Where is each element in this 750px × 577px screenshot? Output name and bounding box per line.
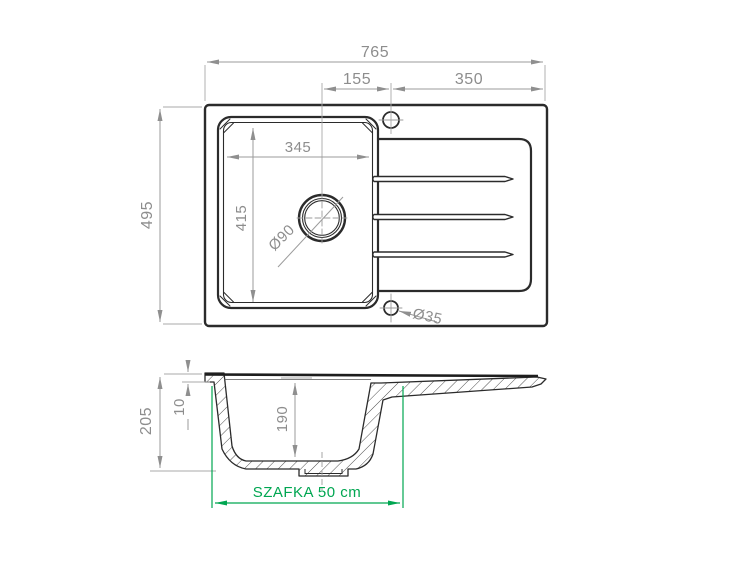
dim-text-bowl-width: 345 [285, 139, 312, 156]
dim-text-overall-depth: 495 [139, 201, 156, 229]
section-view [205, 373, 546, 490]
dim-text-drain-to-faucet: 155 [343, 71, 371, 88]
section-material-profile [205, 373, 546, 476]
dim-text-bowl-length: 415 [233, 205, 250, 232]
top-view [205, 105, 547, 326]
sink-technical-drawing: 765 155 350 345 415 495 Ø90 Ø35 [0, 0, 750, 577]
dim-text-overall-height: 205 [138, 407, 155, 435]
dim-text-bowl-depth: 190 [274, 406, 291, 433]
drawing-sheet: 765 155 350 345 415 495 Ø90 Ø35 [0, 0, 750, 577]
groove [373, 215, 513, 220]
dim-text-faucet-to-edge: 350 [455, 71, 483, 88]
groove [373, 252, 513, 257]
section-top-edge [205, 375, 538, 377]
dim-text-overall-width: 765 [361, 44, 389, 61]
groove [373, 177, 513, 182]
dim-text-rim-height: 10 [171, 398, 188, 416]
dim-text-cabinet: SZAFKA 50 cm [253, 484, 362, 501]
